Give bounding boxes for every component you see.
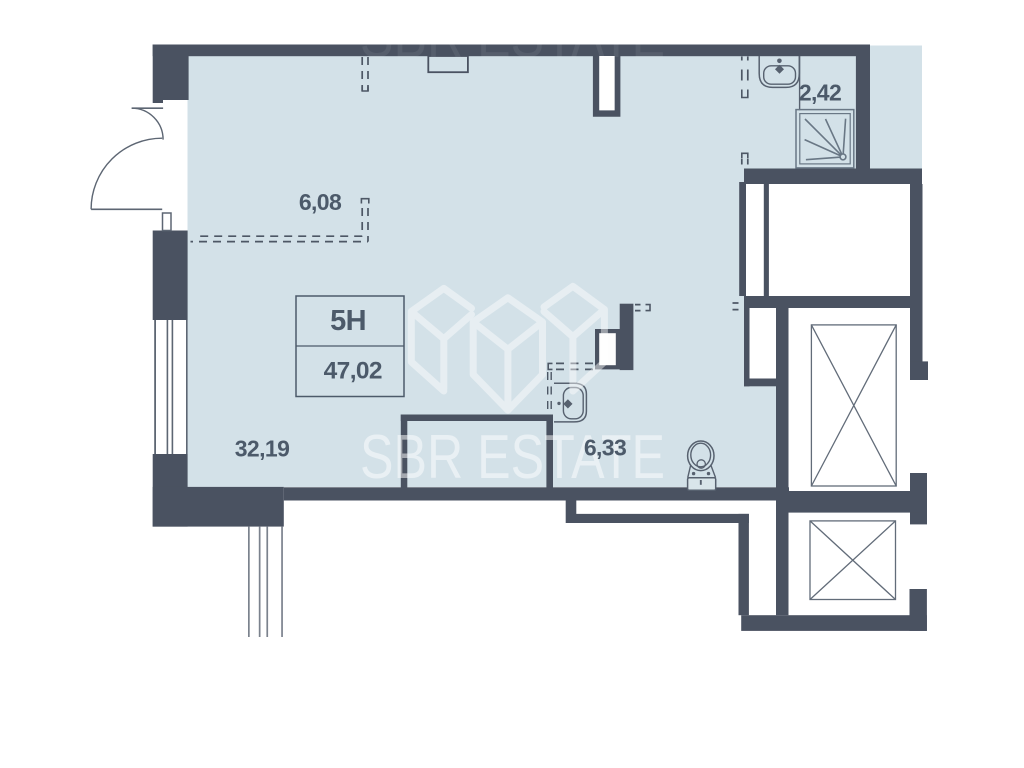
svg-text:SBR ESTATE: SBR ESTATE [360,2,665,71]
svg-text:6,33: 6,33 [584,435,626,461]
svg-text:32,19: 32,19 [235,436,290,462]
svg-text:47,02: 47,02 [324,358,382,385]
svg-text:6,08: 6,08 [299,189,342,215]
svg-text:2,42: 2,42 [799,80,841,106]
svg-text:5H: 5H [330,305,366,337]
